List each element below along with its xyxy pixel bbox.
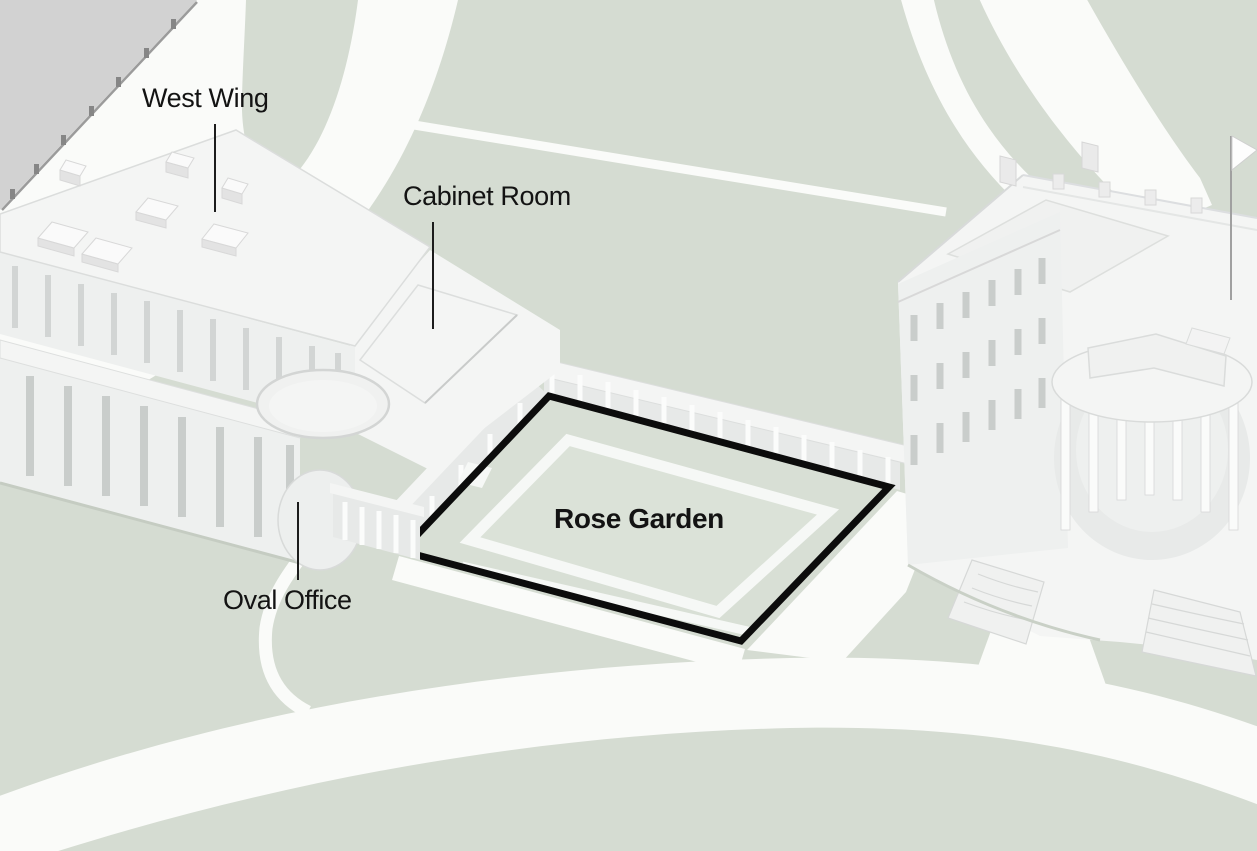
- scene-svg: [0, 0, 1257, 851]
- label-cabinet-room: Cabinet Room: [403, 182, 571, 212]
- label-west-wing: West Wing: [142, 84, 268, 114]
- label-rose-garden: Rose Garden: [554, 504, 724, 535]
- label-oval-office: Oval Office: [223, 586, 352, 616]
- white-house-map: West Wing Cabinet Room Oval Office Rose …: [0, 0, 1257, 851]
- south-portico: [1052, 328, 1252, 560]
